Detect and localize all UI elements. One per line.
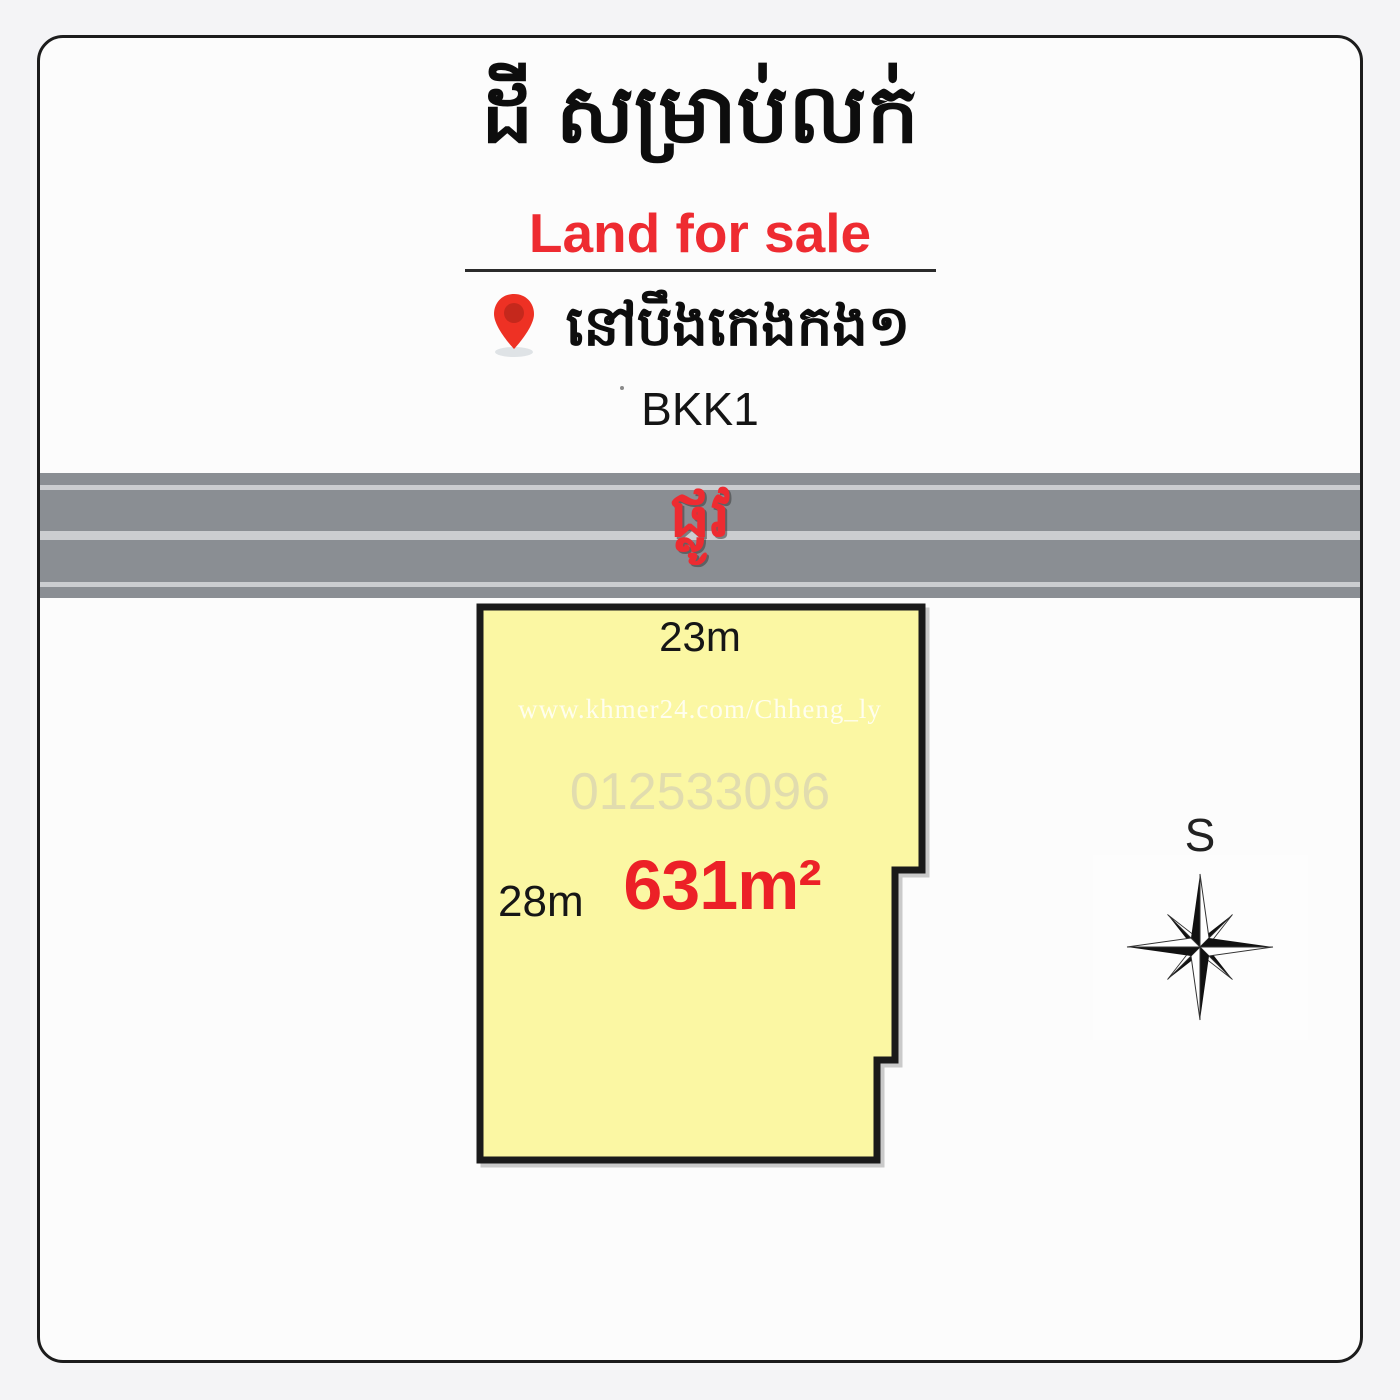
location-english: BKK1 [37,386,1363,432]
road-label-khmer: ផ្លូវ [37,476,1363,553]
plot-width-label: 23m [37,616,1363,658]
location-row: នៅបឹងកេងកង១ [37,292,1363,365]
plot-height-label: 28m [498,880,584,924]
location-pin-icon [490,292,538,365]
subtitle-english: Land for sale [37,206,1363,261]
road-lane-line [39,582,1361,587]
plot-area-label: 631m² [37,850,1363,920]
title-khmer: ដី សម្រាប់លក់ [37,62,1363,169]
location-khmer: នៅបឹងកេងកង១ [566,292,911,359]
watermark-url: www.khmer24.com/Chheng_ly [37,696,1363,723]
header-divider [465,269,936,272]
land-for-sale-flyer: { "header": { "title_km": "ដី សម្រាប់លក់… [0,0,1400,1400]
watermark-phone: 012533096 [37,766,1363,818]
